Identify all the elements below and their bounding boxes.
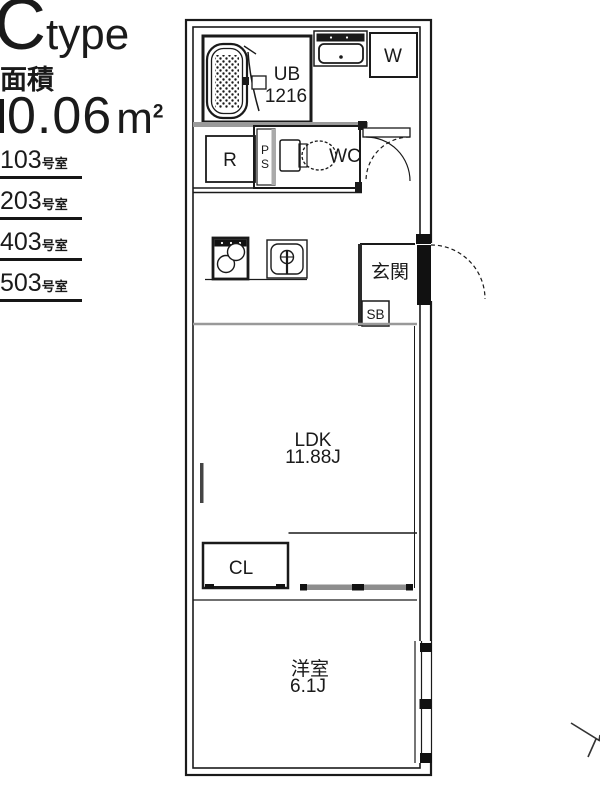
washer-label: W [384,46,402,67]
ldk-size-label: 11.88J [285,447,341,468]
bathtub [207,44,249,118]
kitchen-sink [267,240,307,278]
entrance-label: 玄関 [371,261,409,283]
kitchen [205,238,307,280]
wall-duct-mark [200,463,204,503]
bathroom-label: UB [274,64,300,85]
ps-label-p: P [261,143,269,157]
ps-label-s: S [261,157,269,171]
toilet-fixture [280,140,336,171]
bedroom-window [412,641,435,763]
floorplan-page: Ctype 面積 0.06m2 103号室 203号室 403号室 503号室 [0,0,600,800]
entry-door [415,234,485,305]
floorplan-drawing: UB 1216 W R [0,0,600,800]
north-arrow-fragment [571,723,600,757]
washbasin [314,31,367,66]
bedroom-size-label: 6.1J [290,676,326,697]
shoebox-label: SB [366,307,384,322]
closet-label: CL [229,558,253,579]
stove [213,238,248,279]
toilet-door [363,128,410,181]
bathroom-size-label: 1216 [265,86,307,107]
toilet-label: WC [329,146,361,167]
sliding-door [300,584,413,591]
fridge-label: R [223,150,237,171]
